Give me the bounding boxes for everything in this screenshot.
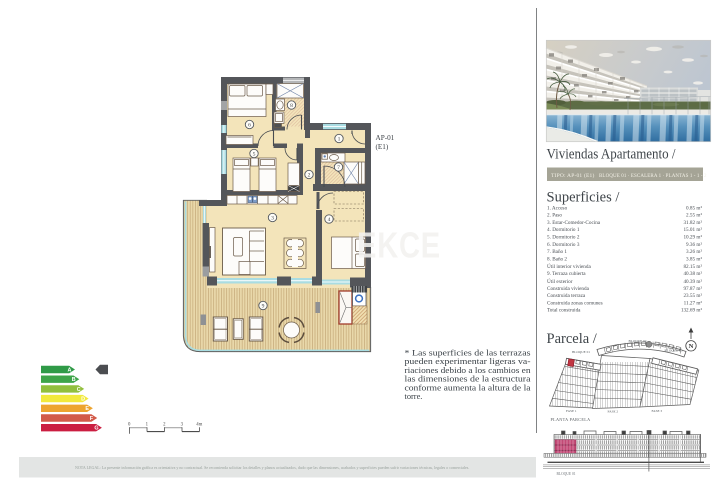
svg-text:9: 9 (262, 304, 265, 310)
svg-text:3.85 m²: 3.85 m² (686, 256, 702, 262)
svg-text:97.87 m²: 97.87 m² (683, 286, 702, 292)
svg-text:riaciones debido a los cambios: riaciones debido a los cambios en (405, 366, 532, 375)
svg-text:1. Acceso: 1. Acceso (547, 205, 568, 211)
svg-text:Útil exterior: Útil exterior (547, 277, 573, 285)
svg-text:Construida vivienda: Construida vivienda (547, 286, 590, 292)
svg-text:Construida terraza: Construida terraza (547, 293, 586, 299)
svg-text:5: 5 (253, 152, 256, 158)
svg-text:Total construida: Total construida (547, 308, 581, 314)
svg-text:(E1): (E1) (376, 143, 389, 151)
svg-text:D: D (81, 397, 85, 403)
svg-text:8. Baño 2: 8. Baño 2 (547, 256, 567, 262)
svg-text:23.55 m²: 23.55 m² (683, 293, 702, 299)
svg-text:5. Dormitorio 2: 5. Dormitorio 2 (547, 235, 580, 241)
svg-text:FASE 1: FASE 1 (566, 409, 577, 413)
svg-text:7: 7 (337, 165, 340, 171)
svg-text:8: 8 (290, 103, 293, 109)
svg-text:BLOQUE 02: BLOQUE 02 (629, 339, 647, 343)
svg-text:10.29 m²: 10.29 m² (683, 235, 702, 241)
svg-text:BLOQUE 01 · ESCALERA 1 · PLANT: BLOQUE 01 · ESCALERA 1 · PLANTAS 1 - 1 -… (599, 174, 707, 179)
svg-text:9.36 m²: 9.36 m² (686, 242, 702, 248)
svg-text:40.39 m²: 40.39 m² (683, 279, 702, 285)
svg-text:FASE 2: FASE 2 (608, 410, 619, 414)
svg-text:132.69 m²: 132.69 m² (681, 308, 703, 314)
svg-text:PLANTA PARCELA: PLANTA PARCELA (551, 417, 591, 422)
svg-text:4: 4 (328, 217, 331, 223)
svg-text:Útil interior vivienda: Útil interior vivienda (547, 262, 591, 270)
svg-text:A: A (68, 367, 72, 373)
svg-text:6: 6 (248, 123, 251, 129)
svg-text:EKCE: EKCE (357, 225, 441, 266)
svg-text:15.01 m²: 15.01 m² (683, 227, 702, 233)
svg-text:Viviendas Apartamento /: Viviendas Apartamento / (547, 147, 677, 163)
svg-text:TIPO: AP-01 (E1): TIPO: AP-01 (E1) (551, 172, 595, 179)
svg-text:pueden experimentar ligeras va: pueden experimentar ligeras va- (405, 357, 531, 366)
svg-text:4. Dormitorio 1: 4. Dormitorio 1 (547, 227, 580, 233)
svg-text:9. Terraza cubierta: 9. Terraza cubierta (547, 271, 586, 277)
svg-text:2. Paso: 2. Paso (547, 213, 562, 219)
svg-text:0.85 m²: 0.85 m² (686, 205, 702, 211)
svg-text:FASE 3: FASE 3 (652, 409, 663, 413)
svg-text:conforme aumenta la altura de: conforme aumenta la altura de la (405, 383, 531, 392)
svg-text:B: B (72, 377, 76, 383)
svg-text:40.38 m²: 40.38 m² (683, 271, 702, 277)
svg-text:1: 1 (338, 137, 341, 143)
svg-text:4m: 4m (196, 423, 202, 428)
svg-text:11.27 m²: 11.27 m² (684, 300, 703, 306)
svg-text:las dimensiones de la estructu: las dimensiones de la estructura (405, 375, 531, 384)
svg-text:2: 2 (308, 173, 311, 179)
svg-text:6. Dormitorio 3: 6. Dormitorio 3 (547, 242, 580, 248)
svg-text:C: C (77, 387, 81, 393)
svg-text:31.82 m²: 31.82 m² (683, 220, 702, 226)
svg-text:3: 3 (271, 216, 274, 222)
svg-text:2.55 m²: 2.55 m² (686, 213, 702, 219)
svg-text:BLOQUE 01: BLOQUE 01 (572, 350, 590, 354)
svg-text:82.15 m²: 82.15 m² (683, 264, 702, 270)
svg-text:N: N (689, 343, 694, 350)
svg-text:* Las superficies de las terra: * Las superficies de las terrazas (405, 349, 531, 358)
svg-text:Construida zonas comunes: Construida zonas comunes (547, 300, 603, 306)
svg-text:BLOQUE 03: BLOQUE 03 (665, 348, 683, 352)
svg-text:7. Baño 1: 7. Baño 1 (547, 249, 567, 255)
svg-text:G: G (94, 426, 98, 432)
svg-text:AP-01: AP-01 (376, 134, 395, 142)
svg-text:BLOQUE 01: BLOQUE 01 (557, 472, 576, 476)
svg-text:torre.: torre. (405, 392, 423, 401)
svg-text:3. Estar-Comedor-Cocina: 3. Estar-Comedor-Cocina (547, 220, 601, 226)
svg-text:E: E (85, 406, 89, 412)
svg-text:Parcela /: Parcela / (547, 331, 598, 347)
svg-text:Superficies /: Superficies / (547, 190, 621, 206)
svg-text:3.26 m²: 3.26 m² (686, 249, 702, 255)
